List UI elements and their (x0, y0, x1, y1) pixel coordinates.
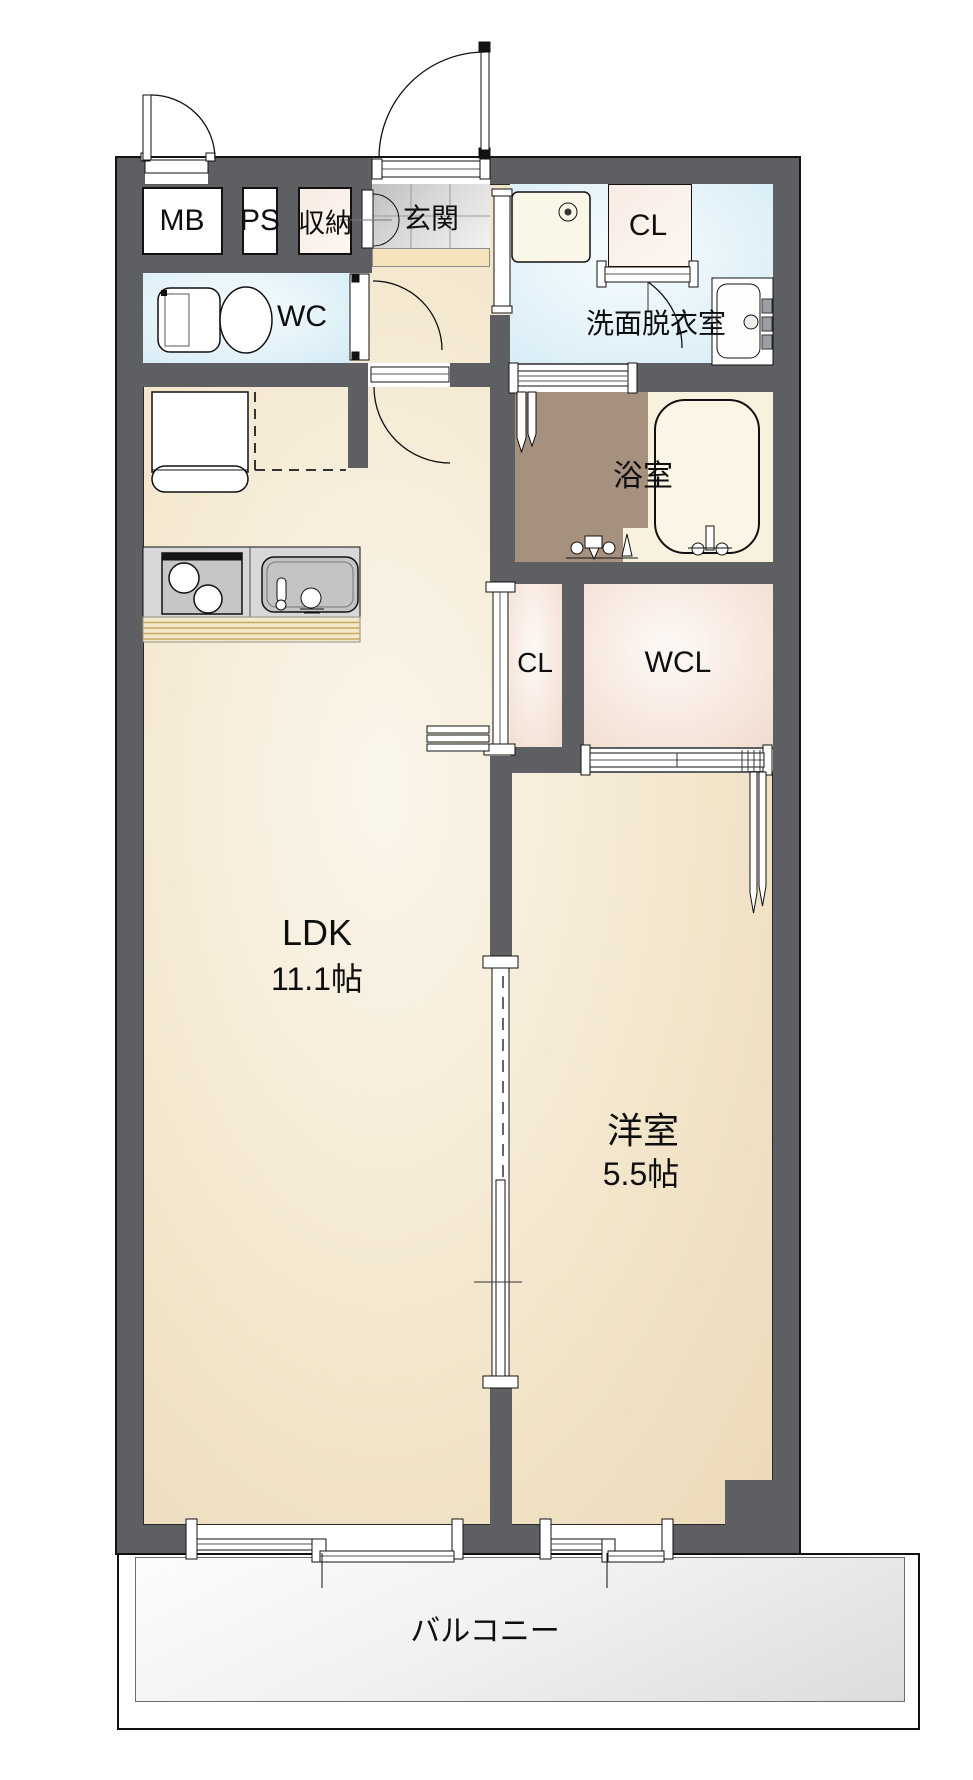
label-bathroom: 浴室 (613, 451, 673, 495)
kitchen-counter-icon (143, 547, 360, 642)
refrigerator-space-icon (152, 392, 346, 492)
label-western-room: 洋室 (607, 1102, 679, 1154)
label-ldk-area: 11.1帖 (271, 954, 363, 1000)
label-wc: WC (277, 300, 327, 334)
label-storage: 収納 (298, 202, 352, 241)
washer-pan-icon (512, 192, 590, 262)
label-ps: PS (240, 204, 280, 238)
label-walk-in-closet: WCL (645, 646, 712, 680)
wc-door-icon (350, 274, 442, 360)
label-ldk: LDK (282, 912, 352, 954)
ldk-balcony-window-icon (186, 1519, 463, 1562)
label-western-room-area: 5.5帖 (603, 1149, 680, 1195)
fixtures-overlay (0, 0, 973, 1780)
entrance-door-icon (372, 42, 490, 184)
closet-middle-door-icon (427, 582, 515, 755)
label-entrance: 玄関 (403, 197, 459, 237)
label-mb: MB (160, 204, 205, 238)
label-washroom: 洗面脱衣室 (586, 302, 726, 342)
hall-ldk-door-icon (368, 363, 450, 463)
toilet-icon (158, 287, 272, 353)
label-closet-middle: CL (517, 647, 553, 679)
mb-door-icon (141, 95, 215, 173)
shower-fixture-icon (566, 534, 638, 559)
floor-plan: MB PS 収納 玄関 WC CL 洗面脱衣室 浴室 CL WCL LDK 11… (0, 0, 973, 1780)
wcl-door-icon (581, 745, 773, 913)
label-closet-upper: CL (629, 209, 667, 243)
bath-door-icon (509, 363, 637, 452)
room-partition-sliding-door-icon (474, 956, 522, 1388)
label-balcony: バルコニー (410, 1606, 559, 1650)
